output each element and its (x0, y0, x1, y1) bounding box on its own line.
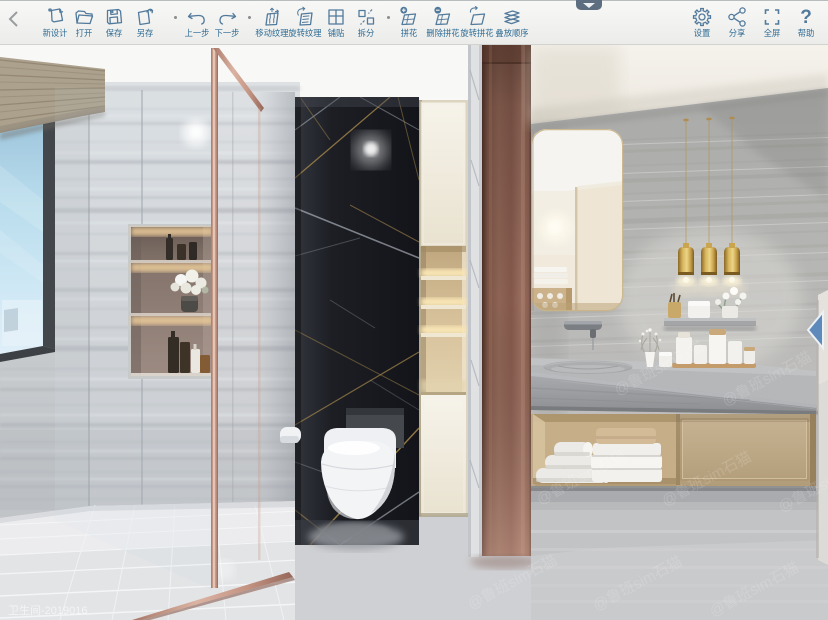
svg-text:?: ? (800, 7, 812, 28)
svg-text:卫生间-2019016: 卫生间-2019016 (8, 603, 88, 617)
